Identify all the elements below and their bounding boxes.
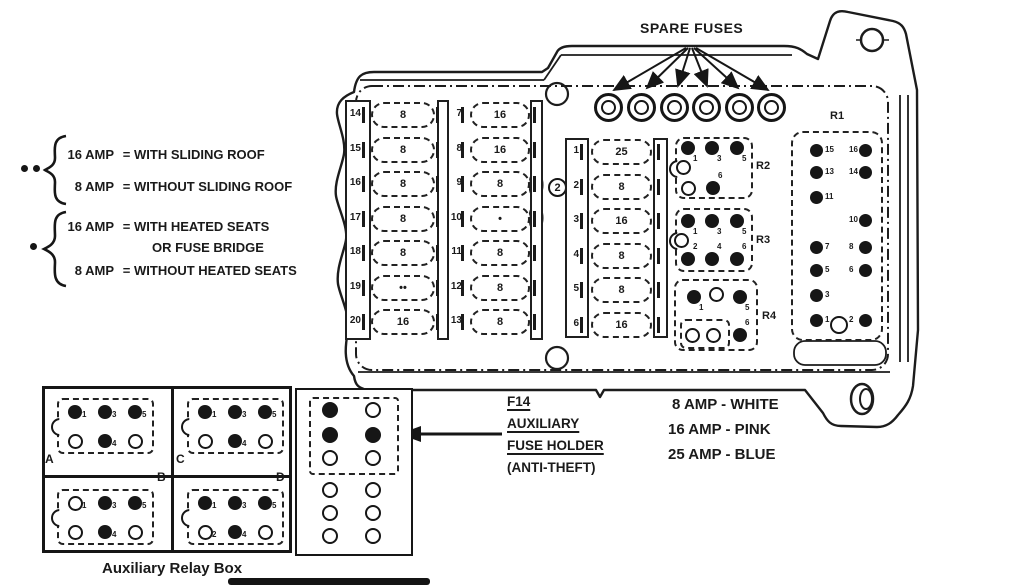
relay-r1-pin <box>859 264 872 277</box>
fuse-number: 6 <box>567 318 579 329</box>
fuse-terminal-icon <box>362 314 365 330</box>
aux-socket-pin <box>198 434 213 449</box>
relay-r1-pin <box>810 166 823 179</box>
fuse-terminal-icon <box>461 107 464 123</box>
fuse: 16 <box>470 102 530 128</box>
relay-r2-pin <box>681 141 695 155</box>
fuse-terminal-icon <box>436 107 439 123</box>
scan-artifact <box>228 578 430 585</box>
aux-socket-pin <box>198 496 212 510</box>
legend-row: 16 AMP=WITH HEATED SEATS <box>62 219 269 234</box>
fuse-number: 5 <box>567 283 579 294</box>
legend-eq: = <box>119 219 134 234</box>
pin-number: 4 <box>112 530 116 539</box>
fuse-number: 13 <box>448 315 462 326</box>
relay-r1-pin <box>810 144 823 157</box>
relay-r2-pin <box>706 181 720 195</box>
fuse-terminal-icon <box>533 211 536 227</box>
fuse-terminal-icon <box>657 144 660 160</box>
fuse-number: 7 <box>448 108 462 119</box>
fuse-terminal-icon <box>580 213 583 229</box>
legend-desc: WITH SLIDING ROOF <box>134 147 265 162</box>
inner-recess <box>794 341 886 365</box>
relay-r2-label: R2 <box>756 160 770 172</box>
pin-number: 5 <box>142 410 146 419</box>
fuse-terminal-icon <box>533 142 536 158</box>
legend-amp: 16 AMP <box>62 147 114 162</box>
fuse: 25 <box>591 139 652 165</box>
fuse-terminal-icon <box>362 107 365 123</box>
relay-r3-pin <box>730 252 744 266</box>
pin-number: 5 <box>825 265 829 274</box>
pin-number: 6 <box>745 318 749 327</box>
f14-label-line: FUSE HOLDER <box>507 438 604 453</box>
relay-r1-socket <box>791 131 883 341</box>
legend-desc: WITHOUT SLIDING ROOF <box>134 179 292 194</box>
fuse-terminal-icon <box>362 176 365 192</box>
pin-number: 5 <box>272 410 276 419</box>
legend-row-cont: OR FUSE BRIDGE <box>152 240 264 255</box>
fuse: 8 <box>470 309 530 335</box>
fuse-number: 12 <box>448 281 462 292</box>
color-code-line: 25 AMP - BLUE <box>668 446 776 463</box>
spare-fuse-icon <box>627 93 656 122</box>
pin-number: 2 <box>849 315 853 324</box>
pin-number: 4 <box>242 530 246 539</box>
aux-socket-pin <box>98 434 112 448</box>
relay-r1-pin <box>810 241 823 254</box>
aux-relay-box-divider <box>171 386 174 553</box>
legend-eq: = <box>119 179 134 194</box>
relay-r1-open-pin <box>830 316 848 334</box>
fuse-terminal-icon <box>533 176 536 192</box>
callout-2-text: 2 <box>554 182 560 194</box>
legend-row: 8 AMP=WITHOUT SLIDING ROOF <box>62 179 292 194</box>
fuse-terminal-icon <box>657 248 660 264</box>
mounting-hole-top-icon <box>861 29 883 51</box>
relay-r4-pin <box>733 328 747 342</box>
relay-r3-pin <box>705 252 719 266</box>
legend-dot-icon <box>21 165 28 172</box>
fuse: 8 <box>470 275 530 301</box>
legend-dot-icon <box>33 165 40 172</box>
aux-socket-pin <box>258 496 272 510</box>
fuse-number: 8 <box>448 143 462 154</box>
relay-r3-pin <box>681 214 695 228</box>
fuse: 16 <box>591 312 652 338</box>
aux-socket-pin <box>128 405 142 419</box>
aux-socket-a-label: A <box>45 452 54 466</box>
pin-number: 3 <box>242 410 246 419</box>
fuse-number: 1 <box>567 145 579 156</box>
fuse-box-diagram: SPARE FUSES 2 16 AMP=WITH SLIDING ROOF 8… <box>0 0 1024 585</box>
pin-number: 1 <box>699 303 703 312</box>
aux-socket-pin <box>228 525 242 539</box>
aux-socket-d-label: D <box>276 470 285 484</box>
fuse-terminal-icon <box>461 245 464 261</box>
relay-r1-pin <box>810 289 823 302</box>
aux-socket-pin <box>128 496 142 510</box>
fuse: 8 <box>371 206 435 232</box>
aux-socket-pin <box>68 434 83 449</box>
legend-amp: 8 AMP <box>62 179 114 194</box>
aux-socket-pin <box>98 405 112 419</box>
color-code-line: 16 AMP - PINK <box>668 421 771 438</box>
pin-number: 2 <box>693 242 697 251</box>
fuse-terminal-icon <box>533 280 536 296</box>
fuse-number: 11 <box>448 246 462 257</box>
fuse-terminal-icon <box>362 211 365 227</box>
relay-r3-pin <box>674 233 689 248</box>
fuse-terminal-icon <box>362 245 365 261</box>
fuse: 8 <box>591 243 652 269</box>
aux-socket-pin <box>128 525 143 540</box>
aux-socket-pin <box>228 434 242 448</box>
spare-fuse-icon <box>757 93 786 122</box>
fuse-terminal-icon <box>657 317 660 333</box>
pin-number: 1 <box>82 501 86 510</box>
fuse-terminal-icon <box>580 282 583 298</box>
fuse-terminal-icon <box>580 179 583 195</box>
fuse-terminal-icon <box>461 280 464 296</box>
fuse-terminal-icon <box>362 142 365 158</box>
spare-fuse-icon <box>692 93 721 122</box>
fuse-terminal-icon <box>436 314 439 330</box>
spare-fuse-icon <box>660 93 689 122</box>
legend-desc: WITHOUT HEATED SEATS <box>134 263 297 278</box>
aux-socket-c-label: C <box>176 452 185 466</box>
aux-socket-pin <box>258 434 273 449</box>
fuse-number: 14 <box>346 108 361 119</box>
pin-number: 15 <box>825 145 834 154</box>
screw-post-bottom-icon <box>546 347 568 369</box>
pin-number: 1 <box>693 154 697 163</box>
pin-number: 1 <box>693 227 697 236</box>
relay-r4-pin <box>685 328 700 343</box>
relay-r2-pin <box>676 160 691 175</box>
relay-r1-pin <box>810 314 823 327</box>
fuse: 16 <box>371 309 435 335</box>
pin-number: 5 <box>142 501 146 510</box>
aux-fuse-holder-pin <box>322 450 338 466</box>
relay-r2-pin <box>681 181 696 196</box>
relay-r1-pin <box>859 214 872 227</box>
pin-number: 3 <box>825 290 829 299</box>
pin-number: 1 <box>212 410 216 419</box>
fuse-terminal-icon <box>657 179 660 195</box>
relay-r3-pin <box>705 214 719 228</box>
fuse-terminal-icon <box>436 142 439 158</box>
pin-number: 3 <box>242 501 246 510</box>
legend-amp: 8 AMP <box>62 263 114 278</box>
pin-number: 13 <box>825 167 834 176</box>
aux-fuse-holder-pin <box>365 528 381 544</box>
color-code-line: 8 AMP - WHITE <box>672 396 779 413</box>
fuse-terminal-icon <box>580 248 583 264</box>
aux-fuse-holder-pin <box>365 402 381 418</box>
fuse-terminal-icon <box>436 176 439 192</box>
fuse-number: 15 <box>346 143 361 154</box>
fuse-number: 19 <box>346 281 361 292</box>
pin-number: 6 <box>718 171 722 180</box>
fuse: 8 <box>591 277 652 303</box>
fuse-number: 20 <box>346 315 361 326</box>
pin-number: 5 <box>272 501 276 510</box>
aux-fuse-holder-pin <box>365 450 381 466</box>
pin-number: 5 <box>742 227 746 236</box>
aux-socket-b-label: B <box>157 470 166 484</box>
legend-eq: = <box>119 263 134 278</box>
relay-r3-pin <box>681 252 695 266</box>
pin-number: 11 <box>825 192 833 201</box>
fuse-terminal-icon <box>533 314 536 330</box>
aux-socket-pin <box>128 434 143 449</box>
pin-number: 6 <box>742 242 746 251</box>
aux-relay-box-divider <box>42 475 292 478</box>
fuse: 8 <box>371 171 435 197</box>
relay-r2-pin <box>730 141 744 155</box>
fuse: 8 <box>470 171 530 197</box>
pin-number: 5 <box>742 154 746 163</box>
aux-socket-pin <box>68 405 82 419</box>
terminal-strip <box>565 138 589 338</box>
f14-arrow-icon <box>399 426 502 442</box>
fuse: •• <box>371 275 435 301</box>
aux-fuse-holder-pin <box>365 505 381 521</box>
relay-r1-pin <box>859 241 872 254</box>
relay-r4-label: R4 <box>762 310 776 322</box>
aux-fuse-holder-pin <box>322 482 338 498</box>
legend-row: 16 AMP=WITH SLIDING ROOF <box>62 147 265 162</box>
terminal-strip <box>653 138 668 338</box>
pin-number: 7 <box>825 242 829 251</box>
aux-fuse-holder-pin <box>322 402 338 418</box>
fuse-number: 18 <box>346 246 361 257</box>
terminal-strip <box>530 100 543 340</box>
mounting-hole-bottom-icon <box>851 384 873 414</box>
aux-socket-pin <box>98 496 112 510</box>
fuse-terminal-icon <box>580 317 583 333</box>
fuse: 8 <box>371 102 435 128</box>
aux-socket-pin <box>198 525 213 540</box>
relay-r4-pin <box>687 290 701 304</box>
spare-fuses-label: SPARE FUSES <box>640 20 743 36</box>
pin-number: 1 <box>825 315 829 324</box>
relay-r4-pin <box>706 328 721 343</box>
legend-desc: WITH HEATED SEATS <box>134 219 269 234</box>
relay-r1-pin <box>859 166 872 179</box>
aux-socket-pin <box>198 405 212 419</box>
fuse-terminal-icon <box>461 176 464 192</box>
pin-number: 10 <box>849 215 858 224</box>
aux-socket-pin <box>228 496 242 510</box>
fuse-terminal-icon <box>580 144 583 160</box>
legend-amp: 16 AMP <box>62 219 114 234</box>
relay-r4-pin <box>733 290 747 304</box>
aux-socket-pin <box>68 525 83 540</box>
fuse-terminal-icon <box>461 211 464 227</box>
aux-fuse-holder-pin <box>322 505 338 521</box>
pin-number: 14 <box>849 167 858 176</box>
pin-number: 3 <box>112 501 116 510</box>
legend-row: 8 AMP=WITHOUT HEATED SEATS <box>62 263 297 278</box>
fuse: 8 <box>371 240 435 266</box>
aux-socket-pin <box>258 525 273 540</box>
pin-number: 6 <box>849 265 853 274</box>
pin-number: 16 <box>849 145 858 154</box>
pin-number: 2 <box>212 530 216 539</box>
f14-label-line: AUXILIARY <box>507 416 579 431</box>
pin-number: 4 <box>717 242 721 251</box>
fuse: 16 <box>591 208 652 234</box>
fuse: • <box>470 206 530 232</box>
fuse-terminal-icon <box>461 314 464 330</box>
fuse-terminal-icon <box>533 107 536 123</box>
fuse: 8 <box>591 174 652 200</box>
aux-socket-pin <box>98 525 112 539</box>
spare-fuse-icon <box>725 93 754 122</box>
aux-relay-box-caption: Auxiliary Relay Box <box>102 560 242 577</box>
f14-label-line: (ANTI-THEFT) <box>507 460 595 475</box>
fuse-number: 4 <box>567 249 579 260</box>
fuse-terminal-icon <box>362 280 365 296</box>
fuse: 8 <box>371 137 435 163</box>
pin-number: 1 <box>212 501 216 510</box>
aux-fuse-holder-pin <box>365 482 381 498</box>
aux-socket-pin <box>68 496 83 511</box>
pin-number: 8 <box>849 242 853 251</box>
fuse: 8 <box>470 240 530 266</box>
pin-number: 3 <box>717 227 721 236</box>
pin-number: 3 <box>717 154 721 163</box>
aux-fuse-holder-pin <box>322 427 338 443</box>
aux-socket-pin <box>258 405 272 419</box>
pin-number: 4 <box>112 439 116 448</box>
pin-number: 4 <box>242 439 246 448</box>
relay-r1-pin <box>859 144 872 157</box>
fuse-number: 17 <box>346 212 361 223</box>
fuse-terminal-icon <box>436 280 439 296</box>
fuse-number: 9 <box>448 177 462 188</box>
relay-r1-pin <box>859 314 872 327</box>
legend-eq: = <box>119 147 134 162</box>
fuse-terminal-icon <box>657 282 660 298</box>
aux-fuse-holder-pin <box>322 528 338 544</box>
fuse-terminal-icon <box>533 245 536 261</box>
relay-r1-label: R1 <box>830 110 844 122</box>
aux-fuse-holder-pin <box>365 427 381 443</box>
fuse-number: 10 <box>448 212 462 223</box>
relay-r3-label: R3 <box>756 234 770 246</box>
relay-r1-pin <box>810 264 823 277</box>
relay-r2-pin <box>705 141 719 155</box>
fuse-number: 2 <box>567 180 579 191</box>
fuse-terminal-icon <box>436 245 439 261</box>
fuse-number: 3 <box>567 214 579 225</box>
legend-dot-icon <box>30 243 37 250</box>
relay-r3-pin <box>730 214 744 228</box>
fuse-terminal-icon <box>657 213 660 229</box>
fuse-number: 16 <box>346 177 361 188</box>
fuse: 16 <box>470 137 530 163</box>
fuse-terminal-icon <box>461 142 464 158</box>
fuse-terminal-icon <box>436 211 439 227</box>
spare-fuse-icon <box>594 93 623 122</box>
pin-number: 5 <box>745 303 749 312</box>
pin-number: 3 <box>112 410 116 419</box>
relay-r4-pin <box>709 287 724 302</box>
relay-r1-pin <box>810 191 823 204</box>
pin-number: 1 <box>82 410 86 419</box>
f14-label-line: F14 <box>507 394 530 409</box>
aux-socket-pin <box>228 405 242 419</box>
